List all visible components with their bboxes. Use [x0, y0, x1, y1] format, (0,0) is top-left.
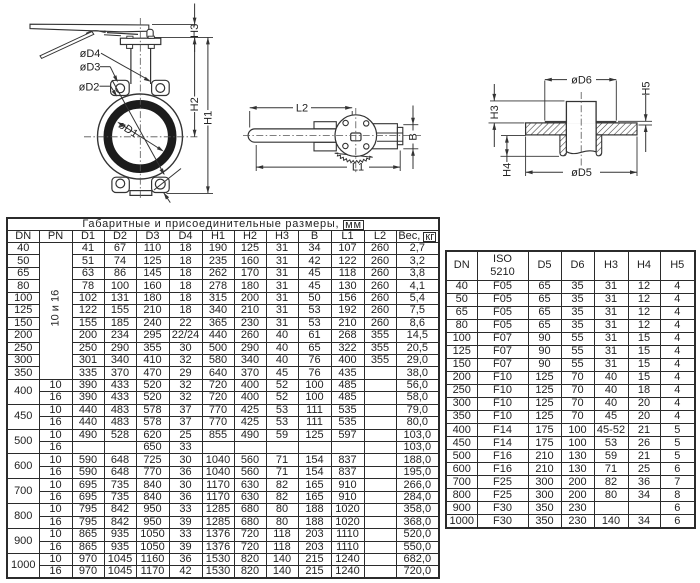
svg-text:H1: H1	[203, 111, 215, 125]
svg-text:B: B	[408, 133, 420, 140]
svg-text:øD3: øD3	[80, 62, 101, 74]
svg-text:H2: H2	[189, 97, 201, 111]
svg-text:øD6: øD6	[571, 74, 592, 86]
svg-text:øD5: øD5	[571, 167, 592, 179]
svg-text:øD2: øD2	[79, 82, 100, 94]
svg-text:H5: H5	[640, 81, 652, 95]
svg-text:H3: H3	[189, 24, 201, 38]
svg-text:øD4: øD4	[80, 48, 101, 60]
svg-text:H4: H4	[502, 163, 514, 177]
svg-text:H3: H3	[489, 105, 501, 119]
svg-text:L1: L1	[352, 162, 364, 174]
svg-text:L2: L2	[296, 102, 308, 114]
